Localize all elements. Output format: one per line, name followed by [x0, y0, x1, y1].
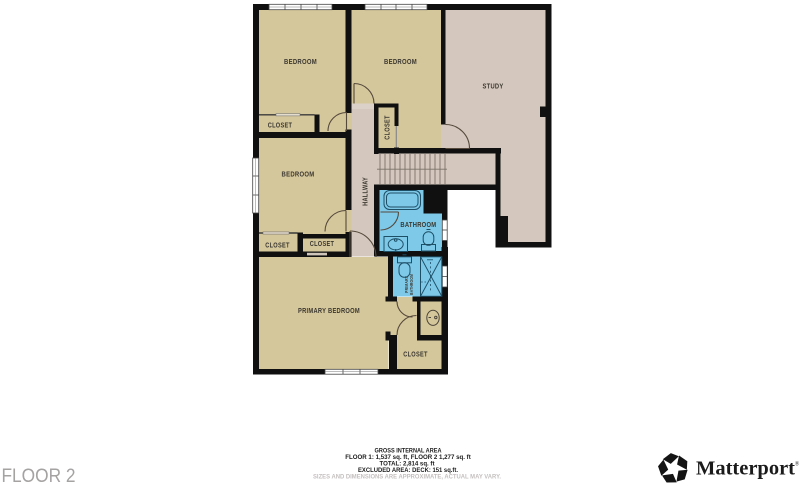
svg-text:GROSS INTERNAL AREA: GROSS INTERNAL AREA [375, 449, 443, 455]
svg-text:STUDY: STUDY [483, 82, 504, 91]
svg-text:BEDROOM: BEDROOM [284, 57, 317, 66]
svg-text:®: ® [795, 461, 800, 468]
svg-text:BEDROOM: BEDROOM [384, 57, 417, 66]
svg-text:CLOSET: CLOSET [384, 115, 391, 140]
svg-text:CLOSET: CLOSET [310, 241, 335, 248]
svg-text:PRIMARY BEDROOM: PRIMARY BEDROOM [298, 306, 360, 315]
svg-text:SIZES AND DIMENSIONS ARE APPRO: SIZES AND DIMENSIONS ARE APPROXIMATE, AC… [313, 474, 501, 480]
svg-text:CLOSET: CLOSET [268, 123, 293, 130]
svg-text:Matterport: Matterport [696, 458, 795, 480]
svg-text:CLOSET: CLOSET [403, 352, 428, 359]
svg-text:TOTAL: 2,814 sq. ft: TOTAL: 2,814 sq. ft [380, 462, 435, 468]
svg-text:PRIMARYBATHROOM: PRIMARYBATHROOM [404, 274, 415, 295]
svg-text:CLOSET: CLOSET [265, 243, 290, 250]
svg-text:HALLWAY: HALLWAY [362, 177, 369, 206]
svg-text:BATHROOM: BATHROOM [400, 220, 436, 229]
svg-text:FLOOR 2: FLOOR 2 [2, 466, 76, 484]
svg-text:FLOOR 1: 1,537 sq. ft, FLOOR 2: FLOOR 1: 1,537 sq. ft, FLOOR 2 1,277 sq.… [345, 455, 471, 461]
svg-text:BEDROOM: BEDROOM [282, 170, 315, 179]
svg-text:EXCLUDED AREA: DECK: 151 sq.ft: EXCLUDED AREA: DECK: 151 sq.ft. [358, 468, 458, 474]
